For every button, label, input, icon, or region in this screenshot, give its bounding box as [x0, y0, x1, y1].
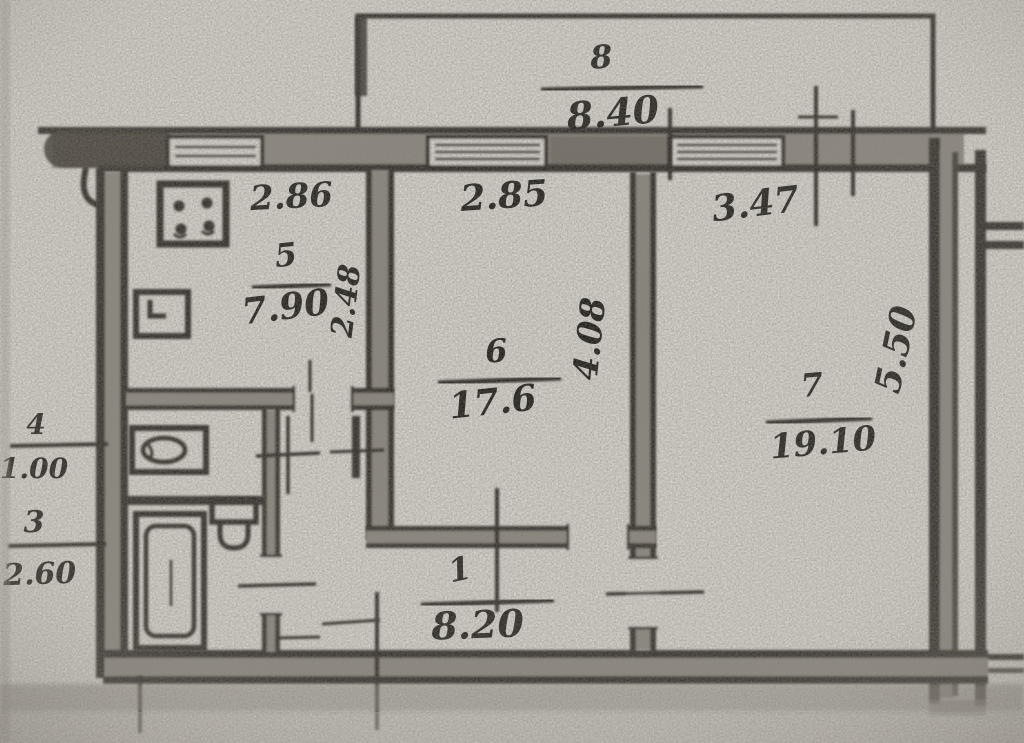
floor-plan-photo: 8 8.40 2.86 5 7.90 2.48 2.85 6 17.6 4.08… [0, 0, 1024, 743]
floor-plan-canvas: 8 8.40 2.86 5 7.90 2.48 2.85 6 17.6 4.08… [0, 0, 1024, 743]
photo-artifacts [0, 0, 1024, 743]
